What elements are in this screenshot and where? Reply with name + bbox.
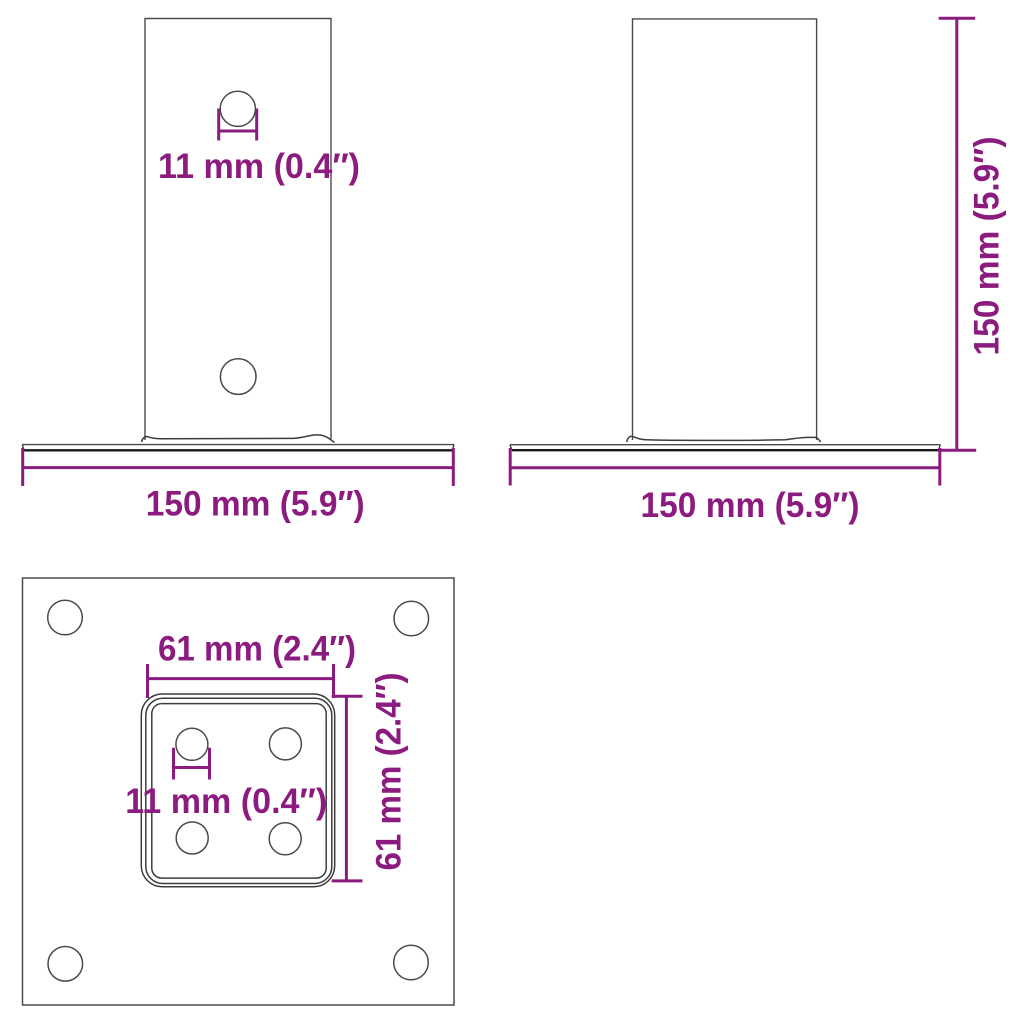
svg-text:150 mm (5.9″): 150 mm (5.9″) (146, 484, 365, 524)
svg-text:61 mm (2.4″): 61 mm (2.4″) (158, 628, 356, 668)
svg-text:150 mm (5.9″): 150 mm (5.9″) (641, 485, 860, 525)
svg-text:11 mm (0.4″): 11 mm (0.4″) (125, 781, 327, 821)
svg-text:150 mm (5.9″): 150 mm (5.9″) (967, 137, 1007, 356)
svg-text:61 mm (2.4″): 61 mm (2.4″) (369, 673, 409, 871)
svg-text:11 mm (0.4″): 11 mm (0.4″) (158, 146, 360, 186)
